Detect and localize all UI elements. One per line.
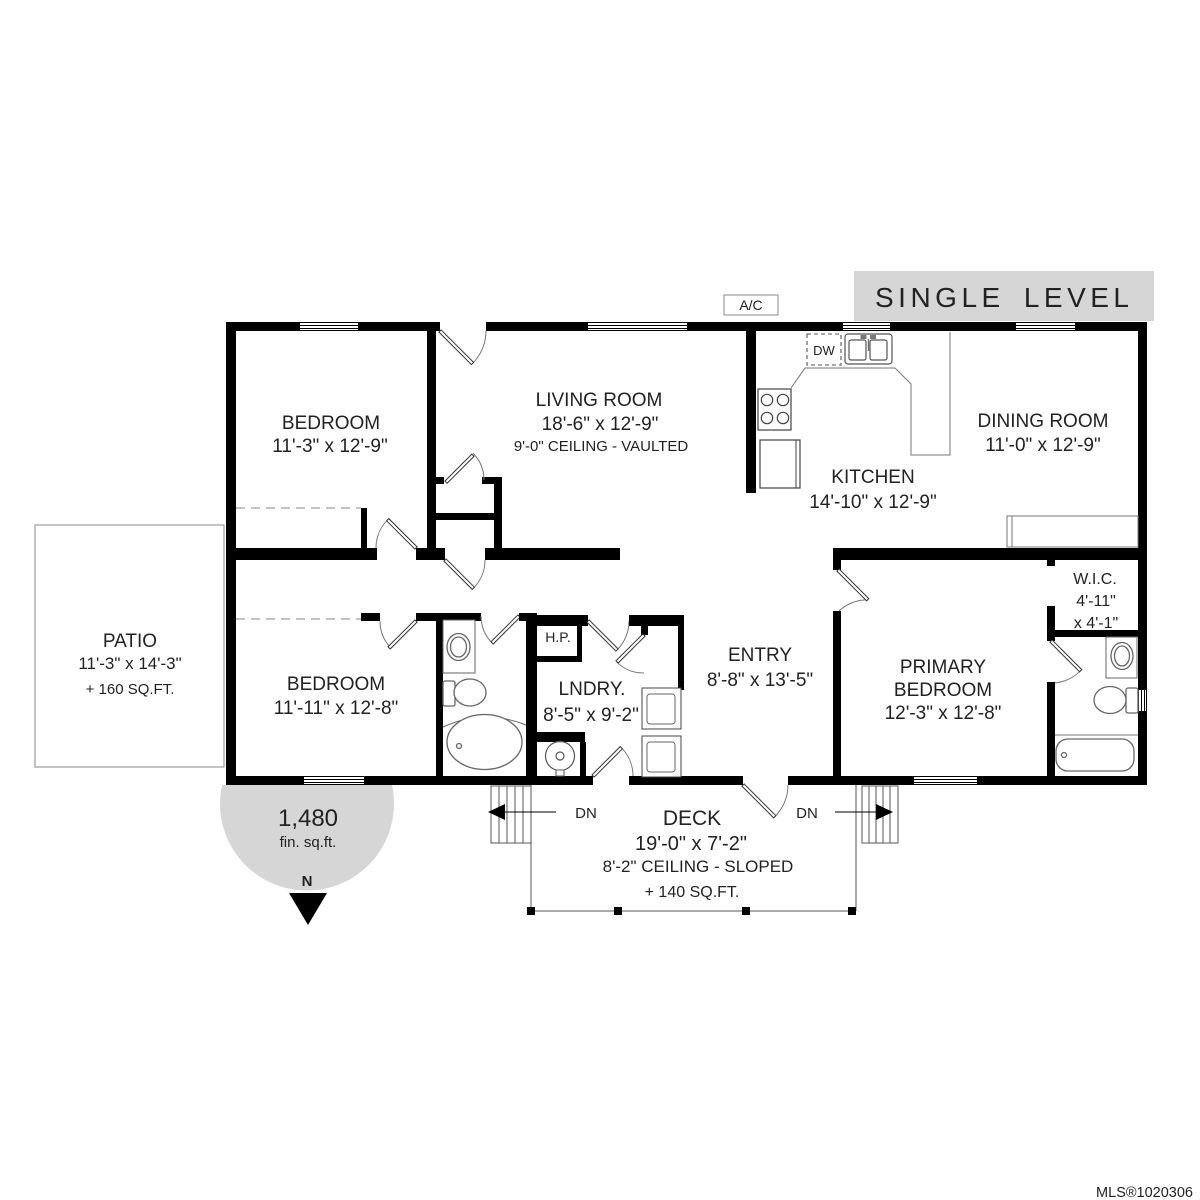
svg-text:11'-0" x 12'-9": 11'-0" x 12'-9" (985, 435, 1100, 456)
svg-text:fin. sq.ft.: fin. sq.ft. (280, 834, 337, 851)
svg-text:x 4'-1": x 4'-1" (1074, 615, 1118, 632)
svg-text:DINING ROOM: DINING ROOM (978, 411, 1109, 432)
svg-text:DN: DN (796, 805, 818, 822)
svg-text:+ 160 SQ.FT.: + 160 SQ.FT. (86, 681, 175, 698)
svg-text:4'-11": 4'-11" (1076, 593, 1116, 610)
svg-text:14'-10" x 12'-9": 14'-10" x 12'-9" (809, 492, 936, 513)
svg-text:MLS®1020306: MLS®1020306 (1096, 1185, 1193, 1200)
svg-text:9'-0" CEILING - VAULTED: 9'-0" CEILING - VAULTED (514, 438, 689, 455)
svg-text:H.P.: H.P. (545, 629, 570, 645)
svg-text:DECK: DECK (663, 807, 721, 830)
svg-text:11'-3" x 14'-3": 11'-3" x 14'-3" (78, 654, 181, 673)
svg-text:ENTRY: ENTRY (728, 645, 792, 666)
svg-text:1,480: 1,480 (278, 805, 338, 832)
svg-text:BEDROOM: BEDROOM (894, 680, 992, 701)
svg-text:8'-8" x 13'-5": 8'-8" x 13'-5" (707, 670, 813, 691)
svg-text:19'-0" x 7'-2": 19'-0" x 7'-2" (635, 833, 747, 855)
svg-text:18'-6" x 12'-9": 18'-6" x 12'-9" (542, 414, 659, 435)
svg-text:8'-2" CEILING - SLOPED: 8'-2" CEILING - SLOPED (603, 857, 794, 876)
svg-text:W.I.C.: W.I.C. (1073, 571, 1117, 588)
svg-text:11'-11" x 12'-8": 11'-11" x 12'-8" (274, 698, 399, 719)
svg-text:PRIMARY: PRIMARY (900, 657, 987, 678)
svg-text:8'-5" x 9'-2": 8'-5" x 9'-2" (543, 705, 639, 726)
svg-text:BEDROOM: BEDROOM (287, 674, 385, 695)
svg-text:11'-3" x 12'-9": 11'-3" x 12'-9" (272, 436, 387, 457)
svg-text:DN: DN (575, 805, 597, 822)
svg-text:LIVING ROOM: LIVING ROOM (536, 390, 663, 411)
svg-text:+ 140 SQ.FT.: + 140 SQ.FT. (645, 884, 740, 901)
svg-text:BEDROOM: BEDROOM (282, 413, 380, 434)
svg-text:LNDRY.: LNDRY. (559, 679, 626, 700)
svg-text:SINGLE LEVEL: SINGLE LEVEL (875, 282, 1134, 313)
svg-text:N: N (302, 873, 313, 890)
svg-text:KITCHEN: KITCHEN (831, 467, 914, 488)
svg-text:12'-3" x 12'-8": 12'-3" x 12'-8" (885, 703, 1002, 724)
svg-text:PATIO: PATIO (103, 631, 157, 652)
svg-text:DW: DW (813, 343, 835, 358)
svg-text:A/C: A/C (739, 297, 762, 313)
